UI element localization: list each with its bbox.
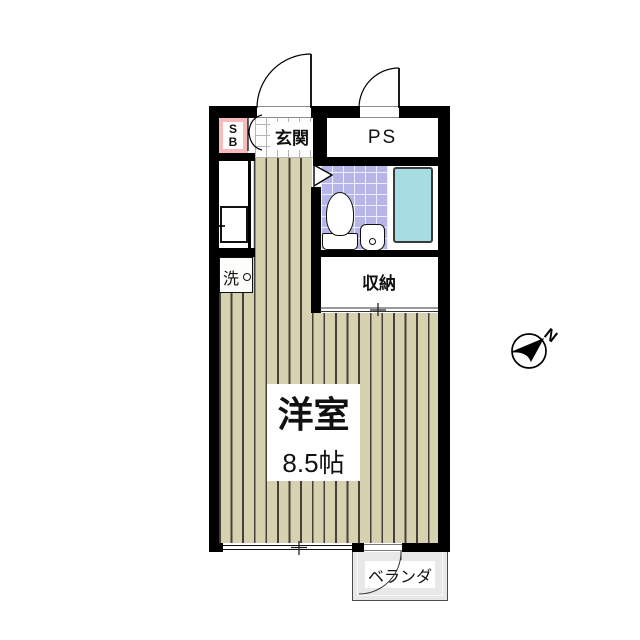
ps-door-opening xyxy=(360,106,399,118)
main-window-opening xyxy=(223,543,352,552)
compass-north-label: N xyxy=(540,326,560,347)
wall-bottom-left xyxy=(209,543,223,552)
wall-bottom-mid xyxy=(352,543,364,552)
shoe-box-label-s: S xyxy=(229,123,237,136)
compass-needle-icon xyxy=(512,339,543,361)
bathtub xyxy=(393,167,433,243)
storage-slide-lines xyxy=(320,308,438,312)
veranda-door-opening xyxy=(364,543,402,552)
wall-counter-bottom xyxy=(209,248,255,257)
washer-label: 洗 xyxy=(223,265,239,289)
shoe-box-label: S B xyxy=(223,122,243,149)
main-room-name: 洋室 xyxy=(277,386,349,438)
veranda: ベランダ xyxy=(352,549,448,601)
veranda-label: ベランダ xyxy=(365,561,435,588)
wall-bottom-right xyxy=(402,543,450,552)
compass-circle-icon xyxy=(512,334,546,368)
sink-drain-icon xyxy=(369,238,376,245)
entrance-label: 玄関 xyxy=(270,122,314,150)
wall-left xyxy=(209,106,219,552)
counter-unit xyxy=(220,206,248,243)
floorplan-canvas: 玄関 PS 収納 S B 洗 洋室 8.5帖 ベランダ xyxy=(0,0,640,640)
storage-label: 収納 xyxy=(355,268,403,295)
main-room-label: 洋室 8.5帖 xyxy=(267,384,360,481)
pipe-space-label: PS xyxy=(368,127,397,149)
shoe-box-label-b: B xyxy=(229,136,238,149)
veranda-label-text: ベランダ xyxy=(368,563,432,587)
washer-space: 洗 xyxy=(219,257,253,293)
entrance-door-arc-icon xyxy=(257,54,311,108)
entrance-label-text: 玄関 xyxy=(275,124,309,149)
wall-ps-bottom xyxy=(313,157,450,166)
toilet-bowl xyxy=(326,192,354,236)
shoe-box: S B xyxy=(218,118,248,153)
storage-closet: 収納 xyxy=(320,256,438,307)
wall-right xyxy=(438,106,450,552)
pipe-space-room: PS xyxy=(327,118,438,157)
wall-counter-divider xyxy=(248,158,251,248)
washer-drain-icon xyxy=(243,273,251,281)
main-room-size: 8.5帖 xyxy=(282,443,344,480)
hand-sink xyxy=(360,224,385,251)
entrance-door-opening xyxy=(257,106,311,118)
wall-storage-top xyxy=(311,250,438,257)
ps-door-arc-icon xyxy=(359,68,399,108)
